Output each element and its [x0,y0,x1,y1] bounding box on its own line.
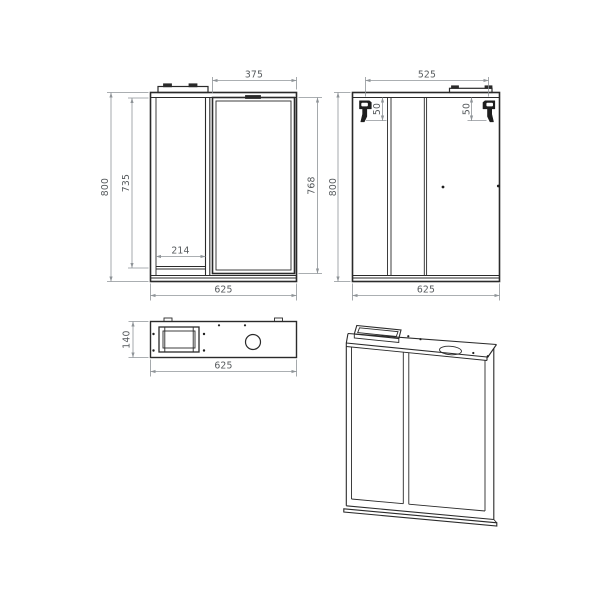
back-panel-joint-left [388,98,392,276]
persp-top-panel-front-edge [346,343,487,357]
back-drill-hole-right [497,185,500,188]
wall-hanger-right-slot [486,103,493,107]
persp-screw-dot-2 [419,338,421,340]
perspective-view [344,326,497,527]
top-screw-dot-2 [152,349,154,351]
front-extension-lines [107,77,322,301]
back-drill-hole-center [442,186,445,189]
persp-screw-dot-3 [472,352,474,354]
front-bottom-band-lines [151,276,297,279]
back-lamp-tab-left [452,86,459,89]
wall-hanger-left-slot [361,103,368,107]
front-dim-overall-width: 625 [214,285,232,296]
front-dim-door-height: 768 [307,176,318,194]
persp-top-panel-right-end [487,345,497,361]
back-view: 525 800 50 50 625 [328,70,500,301]
back-dim-hanger-drop-left: 50 [372,103,383,115]
persp-screw-dot-1 [407,335,409,337]
top-extension-lines [129,322,297,377]
front-divider-lines [206,98,210,276]
top-screw-dot-1 [152,333,154,335]
top-dim-depth: 140 [122,330,133,348]
persp-cable-hole [439,345,462,355]
front-dim-inner-height: 735 [121,174,132,192]
front-door-handle [246,96,261,99]
front-mirror-door [213,98,295,274]
back-dim-hanger-spacing: 525 [418,70,436,81]
top-cable-hole [246,335,261,350]
back-dim-overall-height: 800 [328,178,339,196]
persp-center-divider [403,352,409,504]
top-dim-overall-width: 625 [214,361,232,372]
front-view: 375 800 735 768 214 625 [100,70,322,301]
top-screw-dot-3 [203,333,205,335]
back-dim-overall-width: 625 [417,285,435,296]
front-mirror-door-inner [216,101,291,270]
back-bottom-band-lines [353,276,500,279]
front-dim-shelf-width: 214 [171,246,189,257]
back-extension-lines [334,77,500,301]
top-screw-dot-4 [203,349,205,351]
front-lamp-housing [158,87,208,93]
back-dim-hanger-drop-right: 50 [462,103,473,115]
top-lamp-frame-inner [163,331,195,348]
top-view: 140 625 [122,318,297,377]
persp-bottom-front-edge [346,506,494,520]
front-dim-overall-height: 800 [100,178,111,196]
top-screw-dot-6 [244,324,246,326]
persp-top-panel-thickness [346,347,487,361]
drawing-sheet: 375 800 735 768 214 625 [0,0,600,600]
technical-drawing-canvas: 375 800 735 768 214 625 [0,0,600,600]
persp-screw-dot-4 [487,355,489,357]
front-shelf-lines [156,267,206,270]
persp-bottom-inner-edges [352,499,486,511]
front-dim-door-width: 375 [245,70,263,81]
front-lamp-tab-right [189,84,197,87]
back-panel-joint-right [424,98,426,276]
front-lamp-tab-left [164,84,172,87]
top-screw-dot-5 [218,324,220,326]
persp-left-stile-outer [346,334,348,506]
